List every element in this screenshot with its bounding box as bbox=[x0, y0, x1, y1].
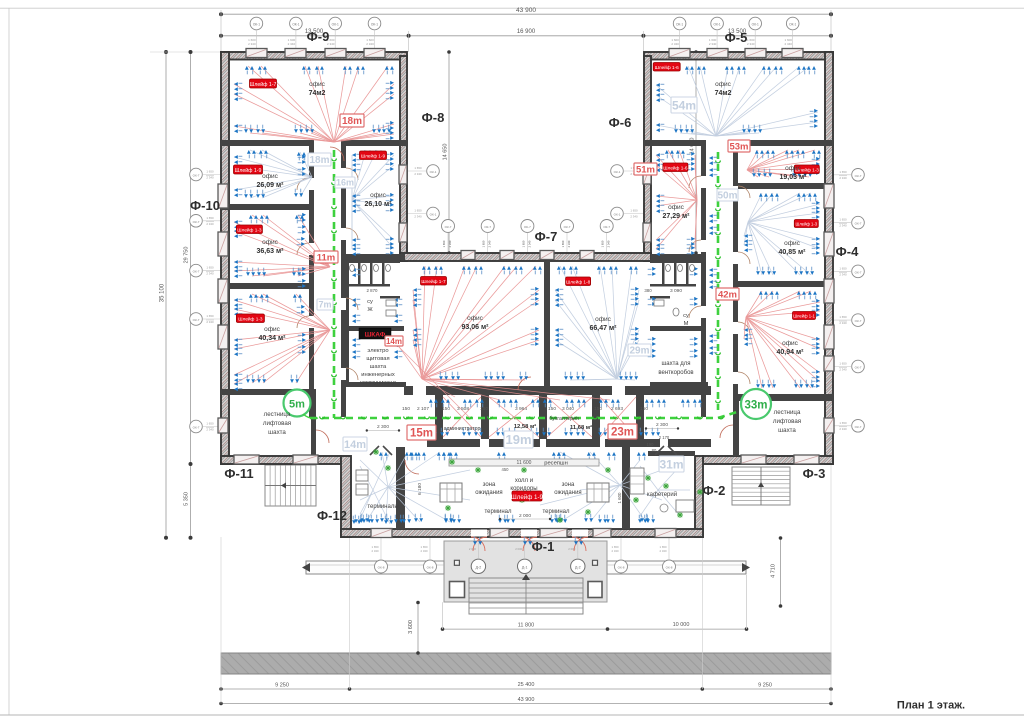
svg-text:40,94 м²: 40,94 м² bbox=[777, 349, 805, 356]
svg-text:10 000: 10 000 bbox=[673, 622, 690, 628]
svg-text:Ф-4: Ф-4 bbox=[836, 244, 859, 259]
svg-text:150: 150 bbox=[402, 406, 410, 412]
svg-text:ОК-1: ОК-1 bbox=[614, 213, 621, 217]
svg-text:коммуникаци: коммуникаци bbox=[360, 380, 396, 386]
svg-text:ОК-7: ОК-7 bbox=[193, 220, 200, 224]
svg-text:офис: офис bbox=[262, 173, 279, 180]
svg-text:М: М bbox=[684, 321, 689, 327]
svg-text:1 650: 1 650 bbox=[482, 240, 486, 247]
svg-text:ресепшн: ресепшн bbox=[544, 461, 568, 467]
svg-text:ОК-8: ОК-8 bbox=[666, 566, 673, 570]
svg-text:Ф-3: Ф-3 bbox=[803, 466, 826, 481]
svg-text:Ф-2: Ф-2 bbox=[703, 483, 726, 498]
svg-text:Ф-10: Ф-10 bbox=[190, 198, 220, 213]
svg-text:3 040: 3 040 bbox=[562, 406, 574, 412]
svg-text:2 340: 2 340 bbox=[414, 172, 422, 176]
svg-text:терминал: терминал bbox=[485, 509, 512, 515]
svg-text:380: 380 bbox=[644, 288, 652, 293]
svg-text:шахта: шахта bbox=[370, 364, 387, 370]
svg-text:лестница: лестница bbox=[264, 411, 291, 418]
svg-text:коридоры: коридоры bbox=[510, 486, 537, 492]
svg-text:1 600: 1 600 bbox=[617, 492, 622, 504]
svg-text:74м2: 74м2 bbox=[309, 90, 326, 97]
svg-text:ОК-1: ОК-1 bbox=[430, 213, 437, 217]
svg-text:офис: офис bbox=[784, 240, 801, 247]
svg-text:ОК-7: ОК-7 bbox=[193, 270, 200, 274]
svg-text:43 900: 43 900 bbox=[516, 7, 536, 14]
svg-text:2 000: 2 000 bbox=[515, 547, 522, 551]
svg-text:1 650: 1 650 bbox=[521, 240, 525, 247]
svg-text:25 400: 25 400 bbox=[518, 682, 535, 688]
svg-text:11 800: 11 800 bbox=[518, 623, 534, 629]
svg-text:23m: 23m bbox=[611, 427, 634, 439]
svg-text:1 650: 1 650 bbox=[206, 314, 214, 318]
svg-text:150: 150 bbox=[442, 406, 450, 412]
svg-text:Ф-9: Ф-9 bbox=[307, 29, 330, 44]
svg-text:450: 450 bbox=[502, 467, 510, 472]
svg-text:2 340: 2 340 bbox=[206, 428, 214, 432]
svg-text:1 650: 1 650 bbox=[630, 209, 638, 213]
svg-text:50m: 50m bbox=[717, 191, 737, 202]
svg-text:ОК-8: ОК-8 bbox=[427, 566, 434, 570]
svg-text:51m: 51m bbox=[636, 164, 655, 175]
svg-text:су: су bbox=[683, 313, 689, 319]
svg-text:1 650: 1 650 bbox=[206, 422, 214, 426]
svg-text:Шлейф 1-9: Шлейф 1-9 bbox=[361, 152, 386, 158]
svg-text:терминалы: терминалы bbox=[367, 504, 398, 510]
svg-text:2 000: 2 000 bbox=[519, 513, 531, 519]
svg-text:лестница: лестница bbox=[774, 409, 801, 416]
svg-text:Ф-5: Ф-5 bbox=[725, 30, 748, 45]
svg-text:Шлейф 1-6: Шлейф 1-6 bbox=[655, 64, 680, 70]
svg-text:Ф-11: Ф-11 bbox=[224, 466, 253, 481]
svg-text:шахта для: шахта для bbox=[661, 361, 690, 367]
svg-text:офис: офис bbox=[262, 239, 279, 246]
svg-text:ОК-7: ОК-7 bbox=[445, 225, 452, 229]
svg-text:16m: 16m bbox=[336, 178, 354, 188]
svg-text:1 650: 1 650 bbox=[206, 216, 214, 220]
svg-text:3 090: 3 090 bbox=[670, 288, 682, 294]
svg-text:2 340: 2 340 bbox=[607, 240, 611, 247]
svg-text:ОК-1: ОК-1 bbox=[714, 23, 721, 27]
svg-text:11,68 м²: 11,68 м² bbox=[570, 424, 592, 431]
svg-text:11m: 11m bbox=[317, 252, 336, 263]
svg-text:ОК-1: ОК-1 bbox=[253, 23, 260, 27]
svg-text:ОК-7: ОК-7 bbox=[855, 319, 862, 323]
svg-text:9 250: 9 250 bbox=[758, 683, 772, 689]
svg-text:2 340: 2 340 bbox=[527, 240, 531, 247]
svg-text:ШКАФ: ШКАФ bbox=[365, 332, 386, 339]
svg-text:66,47 м²: 66,47 м² bbox=[590, 325, 618, 332]
svg-text:ОК-7: ОК-7 bbox=[564, 225, 571, 229]
svg-text:ОК-7: ОК-7 bbox=[855, 270, 862, 274]
svg-text:Шлейф 1-9: Шлейф 1-9 bbox=[511, 494, 543, 501]
svg-text:ожидания: ожидания bbox=[554, 490, 581, 496]
svg-text:2 340: 2 340 bbox=[839, 176, 847, 180]
svg-text:офис: офис bbox=[309, 81, 326, 88]
svg-text:ОК-7: ОК-7 bbox=[193, 426, 200, 430]
svg-text:16 900: 16 900 bbox=[517, 29, 536, 35]
svg-text:ОК-7: ОК-7 bbox=[855, 222, 862, 226]
svg-text:1 650: 1 650 bbox=[839, 362, 847, 366]
svg-text:ОК-1: ОК-1 bbox=[430, 170, 437, 174]
svg-text:ОК-7: ОК-7 bbox=[193, 174, 200, 178]
svg-text:ОК-7: ОК-7 bbox=[193, 318, 200, 322]
svg-text:5m: 5m bbox=[289, 399, 305, 411]
svg-text:2 340: 2 340 bbox=[671, 42, 679, 46]
svg-text:Ф-12: Ф-12 bbox=[317, 508, 347, 523]
svg-text:150: 150 bbox=[480, 406, 488, 412]
svg-text:80: 80 bbox=[652, 448, 657, 453]
svg-text:ОК-7: ОК-7 bbox=[524, 225, 531, 229]
svg-text:зона: зона bbox=[483, 482, 496, 488]
svg-text:Ф-6: Ф-6 bbox=[609, 115, 632, 130]
svg-text:5 350: 5 350 bbox=[184, 492, 190, 506]
svg-text:93,06 м²: 93,06 м² bbox=[462, 324, 490, 331]
svg-text:2 170: 2 170 bbox=[659, 435, 670, 440]
svg-text:2 340: 2 340 bbox=[288, 42, 296, 46]
svg-text:Ф-7: Ф-7 bbox=[535, 229, 558, 244]
svg-text:40,34 м²: 40,34 м² bbox=[259, 335, 287, 342]
svg-text:11 600: 11 600 bbox=[517, 460, 532, 466]
svg-text:42m: 42m bbox=[718, 289, 737, 300]
svg-text:Шлейф 1-3: Шлейф 1-3 bbox=[237, 226, 262, 232]
svg-text:ОК-7: ОК-7 bbox=[603, 225, 610, 229]
svg-text:1 650: 1 650 bbox=[839, 315, 847, 319]
svg-text:администратор: администратор bbox=[444, 426, 481, 432]
svg-text:2 340: 2 340 bbox=[839, 427, 847, 431]
svg-text:лифтовая: лифтовая bbox=[773, 418, 801, 425]
svg-text:26,09 м²: 26,09 м² bbox=[257, 182, 285, 189]
svg-text:2 340: 2 340 bbox=[709, 42, 717, 46]
svg-text:31m: 31m bbox=[659, 457, 683, 471]
svg-text:3 600: 3 600 bbox=[408, 620, 414, 634]
svg-text:Д-2: Д-2 bbox=[575, 565, 581, 569]
svg-text:1 650: 1 650 bbox=[206, 266, 214, 270]
svg-text:190: 190 bbox=[647, 442, 655, 447]
svg-text:2 340: 2 340 bbox=[660, 549, 667, 553]
svg-text:2 340: 2 340 bbox=[206, 176, 214, 180]
svg-text:2 340: 2 340 bbox=[747, 42, 755, 46]
svg-text:Ф-8: Ф-8 bbox=[422, 110, 445, 125]
svg-text:27,29 м²: 27,29 м² bbox=[663, 213, 691, 220]
svg-text:План 1 этаж.: План 1 этаж. bbox=[897, 700, 965, 712]
svg-text:офис: офис bbox=[264, 326, 281, 333]
svg-text:Шлейф 1-7: Шлейф 1-7 bbox=[421, 278, 446, 284]
svg-text:54m: 54m bbox=[672, 98, 696, 112]
svg-text:Ф-1: Ф-1 bbox=[532, 539, 555, 554]
svg-text:Ж: Ж bbox=[367, 307, 373, 313]
svg-text:53m: 53m bbox=[729, 141, 748, 152]
svg-text:ОК-8: ОК-8 bbox=[618, 566, 625, 570]
svg-text:ОК-8: ОК-8 bbox=[378, 566, 385, 570]
svg-text:2 340: 2 340 bbox=[839, 224, 847, 228]
svg-text:14m: 14m bbox=[344, 439, 366, 451]
svg-text:Шлейф 1-3: Шлейф 1-3 bbox=[238, 315, 263, 321]
svg-text:150: 150 bbox=[548, 406, 556, 412]
svg-text:зона: зона bbox=[562, 482, 575, 488]
svg-text:офис: офис bbox=[668, 204, 685, 211]
svg-text:инженерных: инженерных bbox=[361, 372, 395, 378]
svg-text:1 650: 1 650 bbox=[601, 240, 605, 247]
svg-text:43 900: 43 900 bbox=[518, 697, 535, 703]
svg-text:15m: 15m bbox=[410, 428, 433, 440]
svg-text:2 340: 2 340 bbox=[206, 222, 214, 226]
svg-text:12,58 м²: 12,58 м² bbox=[514, 423, 536, 430]
svg-text:электро: электро bbox=[367, 348, 388, 354]
svg-text:Шлейф 1-9: Шлейф 1-9 bbox=[235, 167, 262, 174]
svg-text:18m: 18m bbox=[309, 155, 329, 166]
svg-text:шахта: шахта bbox=[268, 429, 286, 436]
svg-text:венткоробов: венткоробов bbox=[658, 370, 693, 376]
svg-text:кафетерий: кафетерий bbox=[647, 491, 677, 498]
svg-text:2 693: 2 693 bbox=[611, 406, 623, 412]
svg-text:33m: 33m bbox=[744, 400, 767, 412]
svg-text:офис: офис bbox=[715, 81, 732, 88]
svg-text:2 340: 2 340 bbox=[206, 320, 214, 324]
svg-text:Шлейф 1-7: Шлейф 1-7 bbox=[250, 81, 277, 88]
svg-text:Шлейф 1-3: Шлейф 1-3 bbox=[795, 221, 817, 226]
svg-text:щитовая: щитовая bbox=[366, 356, 389, 362]
svg-text:1 650: 1 650 bbox=[839, 170, 847, 174]
svg-text:2 300: 2 300 bbox=[656, 422, 668, 428]
svg-text:ОК-1: ОК-1 bbox=[752, 23, 759, 27]
svg-text:2 300: 2 300 bbox=[377, 424, 389, 430]
svg-text:29m: 29m bbox=[629, 346, 649, 357]
svg-text:офис: офис bbox=[785, 165, 802, 172]
svg-text:40,85 м²: 40,85 м² bbox=[779, 249, 807, 256]
svg-text:ОК-1: ОК-1 bbox=[292, 23, 299, 27]
svg-text:шахта: шахта bbox=[778, 427, 796, 434]
svg-text:холл и: холл и bbox=[515, 478, 533, 484]
svg-text:6 180: 6 180 bbox=[417, 483, 423, 495]
svg-text:1 650: 1 650 bbox=[839, 266, 847, 270]
svg-text:офис: офис bbox=[782, 340, 799, 347]
svg-text:18m: 18m bbox=[342, 116, 362, 127]
svg-text:74м2: 74м2 bbox=[715, 90, 732, 97]
svg-text:2 340: 2 340 bbox=[567, 240, 571, 247]
svg-text:150: 150 bbox=[594, 406, 602, 412]
svg-text:Шлейф 1-6: Шлейф 1-6 bbox=[663, 164, 688, 170]
svg-text:2 340: 2 340 bbox=[839, 321, 847, 325]
svg-text:2 340: 2 340 bbox=[366, 42, 374, 46]
svg-text:ОК-1: ОК-1 bbox=[371, 23, 378, 27]
svg-text:ОК-7: ОК-7 bbox=[855, 425, 862, 429]
svg-text:Шлейф 1-1: Шлейф 1-1 bbox=[793, 313, 815, 318]
svg-text:3 508: 3 508 bbox=[457, 406, 469, 412]
svg-text:офис: офис bbox=[595, 316, 612, 323]
svg-text:ожидания: ожидания bbox=[475, 490, 502, 496]
svg-text:ОК-7: ОК-7 bbox=[484, 225, 491, 229]
svg-text:2 340: 2 340 bbox=[206, 272, 214, 276]
svg-text:2 870: 2 870 bbox=[367, 288, 379, 293]
svg-text:1 650: 1 650 bbox=[561, 240, 565, 247]
svg-text:19,03 м²: 19,03 м² bbox=[780, 174, 808, 181]
svg-text:35 100: 35 100 bbox=[160, 283, 166, 302]
svg-text:2 340: 2 340 bbox=[372, 549, 379, 553]
svg-text:14m: 14m bbox=[386, 337, 402, 346]
svg-text:1 650: 1 650 bbox=[414, 209, 422, 213]
svg-text:1 650: 1 650 bbox=[839, 421, 847, 425]
svg-text:ОК-1: ОК-1 bbox=[789, 23, 796, 27]
svg-text:150: 150 bbox=[640, 406, 648, 412]
svg-text:ОК-7: ОК-7 bbox=[855, 366, 862, 370]
svg-text:ОК-1: ОК-1 bbox=[614, 170, 621, 174]
svg-text:офис: офис bbox=[467, 315, 484, 322]
svg-text:лифтовая: лифтовая bbox=[263, 420, 291, 427]
svg-text:2 340: 2 340 bbox=[421, 549, 428, 553]
svg-text:3 964: 3 964 bbox=[515, 406, 527, 412]
svg-text:2 340: 2 340 bbox=[488, 240, 492, 247]
svg-text:9 250: 9 250 bbox=[275, 683, 289, 689]
svg-text:ОК-1: ОК-1 bbox=[332, 23, 339, 27]
svg-text:2 340: 2 340 bbox=[248, 42, 256, 46]
svg-text:1 650: 1 650 bbox=[839, 218, 847, 222]
svg-text:офис: офис bbox=[370, 192, 387, 199]
svg-text:Шлейф 1-8: Шлейф 1-8 bbox=[566, 278, 591, 284]
svg-text:36,63 м²: 36,63 м² bbox=[257, 248, 285, 255]
svg-text:2 340: 2 340 bbox=[630, 215, 638, 219]
svg-text:2 340: 2 340 bbox=[414, 215, 422, 219]
svg-text:4 710: 4 710 bbox=[771, 564, 777, 578]
svg-text:су: су bbox=[367, 299, 373, 305]
svg-text:2 340: 2 340 bbox=[839, 272, 847, 276]
svg-text:бухгалтерия: бухгалтерия bbox=[549, 416, 579, 422]
svg-text:2 340: 2 340 bbox=[448, 240, 452, 247]
svg-text:2 107: 2 107 bbox=[417, 406, 429, 412]
svg-text:терминал: терминал bbox=[543, 509, 570, 515]
svg-text:1 650: 1 650 bbox=[414, 166, 422, 170]
svg-text:Д-2: Д-2 bbox=[476, 565, 482, 569]
svg-text:19m: 19m bbox=[505, 432, 531, 447]
svg-text:26,10 м²: 26,10 м² bbox=[365, 201, 393, 208]
svg-text:2 340: 2 340 bbox=[839, 368, 847, 372]
svg-text:14 650: 14 650 bbox=[443, 144, 449, 161]
svg-text:1 650: 1 650 bbox=[206, 170, 214, 174]
svg-text:Д-1: Д-1 bbox=[522, 565, 528, 569]
svg-text:ОК-1: ОК-1 bbox=[676, 23, 683, 27]
svg-text:29 750: 29 750 bbox=[184, 247, 190, 264]
svg-text:1 650: 1 650 bbox=[442, 240, 446, 247]
svg-text:ОК-7: ОК-7 bbox=[855, 174, 862, 178]
svg-text:2 340: 2 340 bbox=[784, 42, 792, 46]
svg-text:2 340: 2 340 bbox=[612, 549, 619, 553]
svg-text:7m: 7m bbox=[318, 300, 331, 310]
